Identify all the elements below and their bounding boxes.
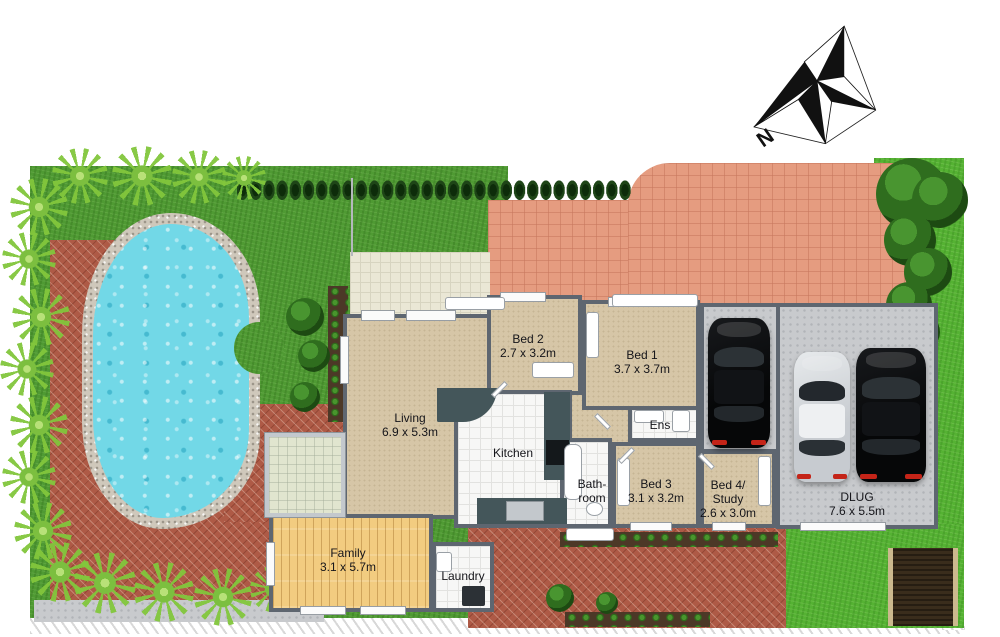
palm-tree	[172, 150, 226, 204]
wardrobe	[758, 456, 771, 506]
palm-tree	[2, 450, 56, 504]
window	[300, 606, 346, 615]
palm-tree	[52, 148, 108, 204]
palm-tree	[222, 156, 266, 200]
garden-bed-strip-bottom	[565, 612, 710, 627]
porch-step	[566, 528, 614, 541]
shower	[672, 410, 690, 432]
floorplan-canvas: N Living6.9 x 5.3m Kitchen Bed 22.7 x 3.…	[0, 0, 1000, 637]
label-laundry: Laundry	[441, 569, 484, 583]
pool-notch-lawn	[234, 322, 284, 374]
hedge-row	[236, 174, 632, 201]
planter-box	[612, 294, 698, 307]
car-garage-silver	[794, 352, 850, 482]
label-bed3: Bed 33.1 x 3.2m	[628, 477, 684, 505]
label-ensuite: Ens	[650, 418, 671, 432]
pool-coping	[82, 213, 260, 529]
label-kitchen: Kitchen	[493, 446, 533, 460]
bush	[290, 382, 320, 412]
palm-tree	[0, 342, 54, 396]
palm-tree	[194, 568, 252, 626]
palm-tree	[2, 232, 56, 286]
label-bed4: Bed 4/Study2.6 x 3.0m	[700, 478, 756, 520]
label-family: Family3.1 x 5.7m	[320, 546, 376, 574]
sunroom-patio	[265, 433, 345, 517]
driveway-paving-left	[488, 200, 633, 304]
compass-rose: N	[748, 22, 888, 150]
label-garage: DLUG7.6 x 5.5m	[829, 490, 885, 518]
label-living: Living6.9 x 5.3m	[382, 411, 438, 439]
palm-tree	[10, 396, 68, 454]
garage-door	[800, 522, 886, 531]
car-garage-black	[856, 348, 926, 482]
palm-tree	[74, 552, 136, 614]
window	[340, 336, 349, 384]
label-bed1: Bed 13.7 x 3.7m	[614, 348, 670, 376]
window	[360, 606, 406, 615]
compass-north-label: N	[753, 124, 779, 150]
planter-box	[445, 297, 505, 310]
window	[361, 310, 395, 321]
window	[630, 522, 672, 531]
window	[500, 292, 546, 302]
fence-line	[351, 178, 353, 256]
wardrobe	[532, 362, 574, 378]
window	[712, 522, 746, 531]
driveway-paving	[628, 163, 908, 304]
bush	[286, 298, 324, 336]
bush	[298, 340, 330, 372]
vegetable-garden-plot	[888, 548, 958, 626]
bush	[596, 592, 618, 614]
window	[266, 542, 275, 586]
bush	[546, 584, 574, 612]
car-carport	[708, 318, 770, 448]
window	[406, 310, 456, 321]
label-bathroom: Bath-room	[578, 477, 607, 505]
kitchen-sink	[506, 501, 544, 521]
palm-tree	[112, 146, 172, 206]
wardrobe	[586, 312, 599, 358]
swimming-pool	[93, 224, 249, 518]
washing-machine	[462, 586, 485, 606]
palm-tree	[12, 288, 70, 346]
palm-tree	[134, 562, 194, 622]
label-bed2: Bed 22.7 x 3.2m	[500, 332, 556, 360]
